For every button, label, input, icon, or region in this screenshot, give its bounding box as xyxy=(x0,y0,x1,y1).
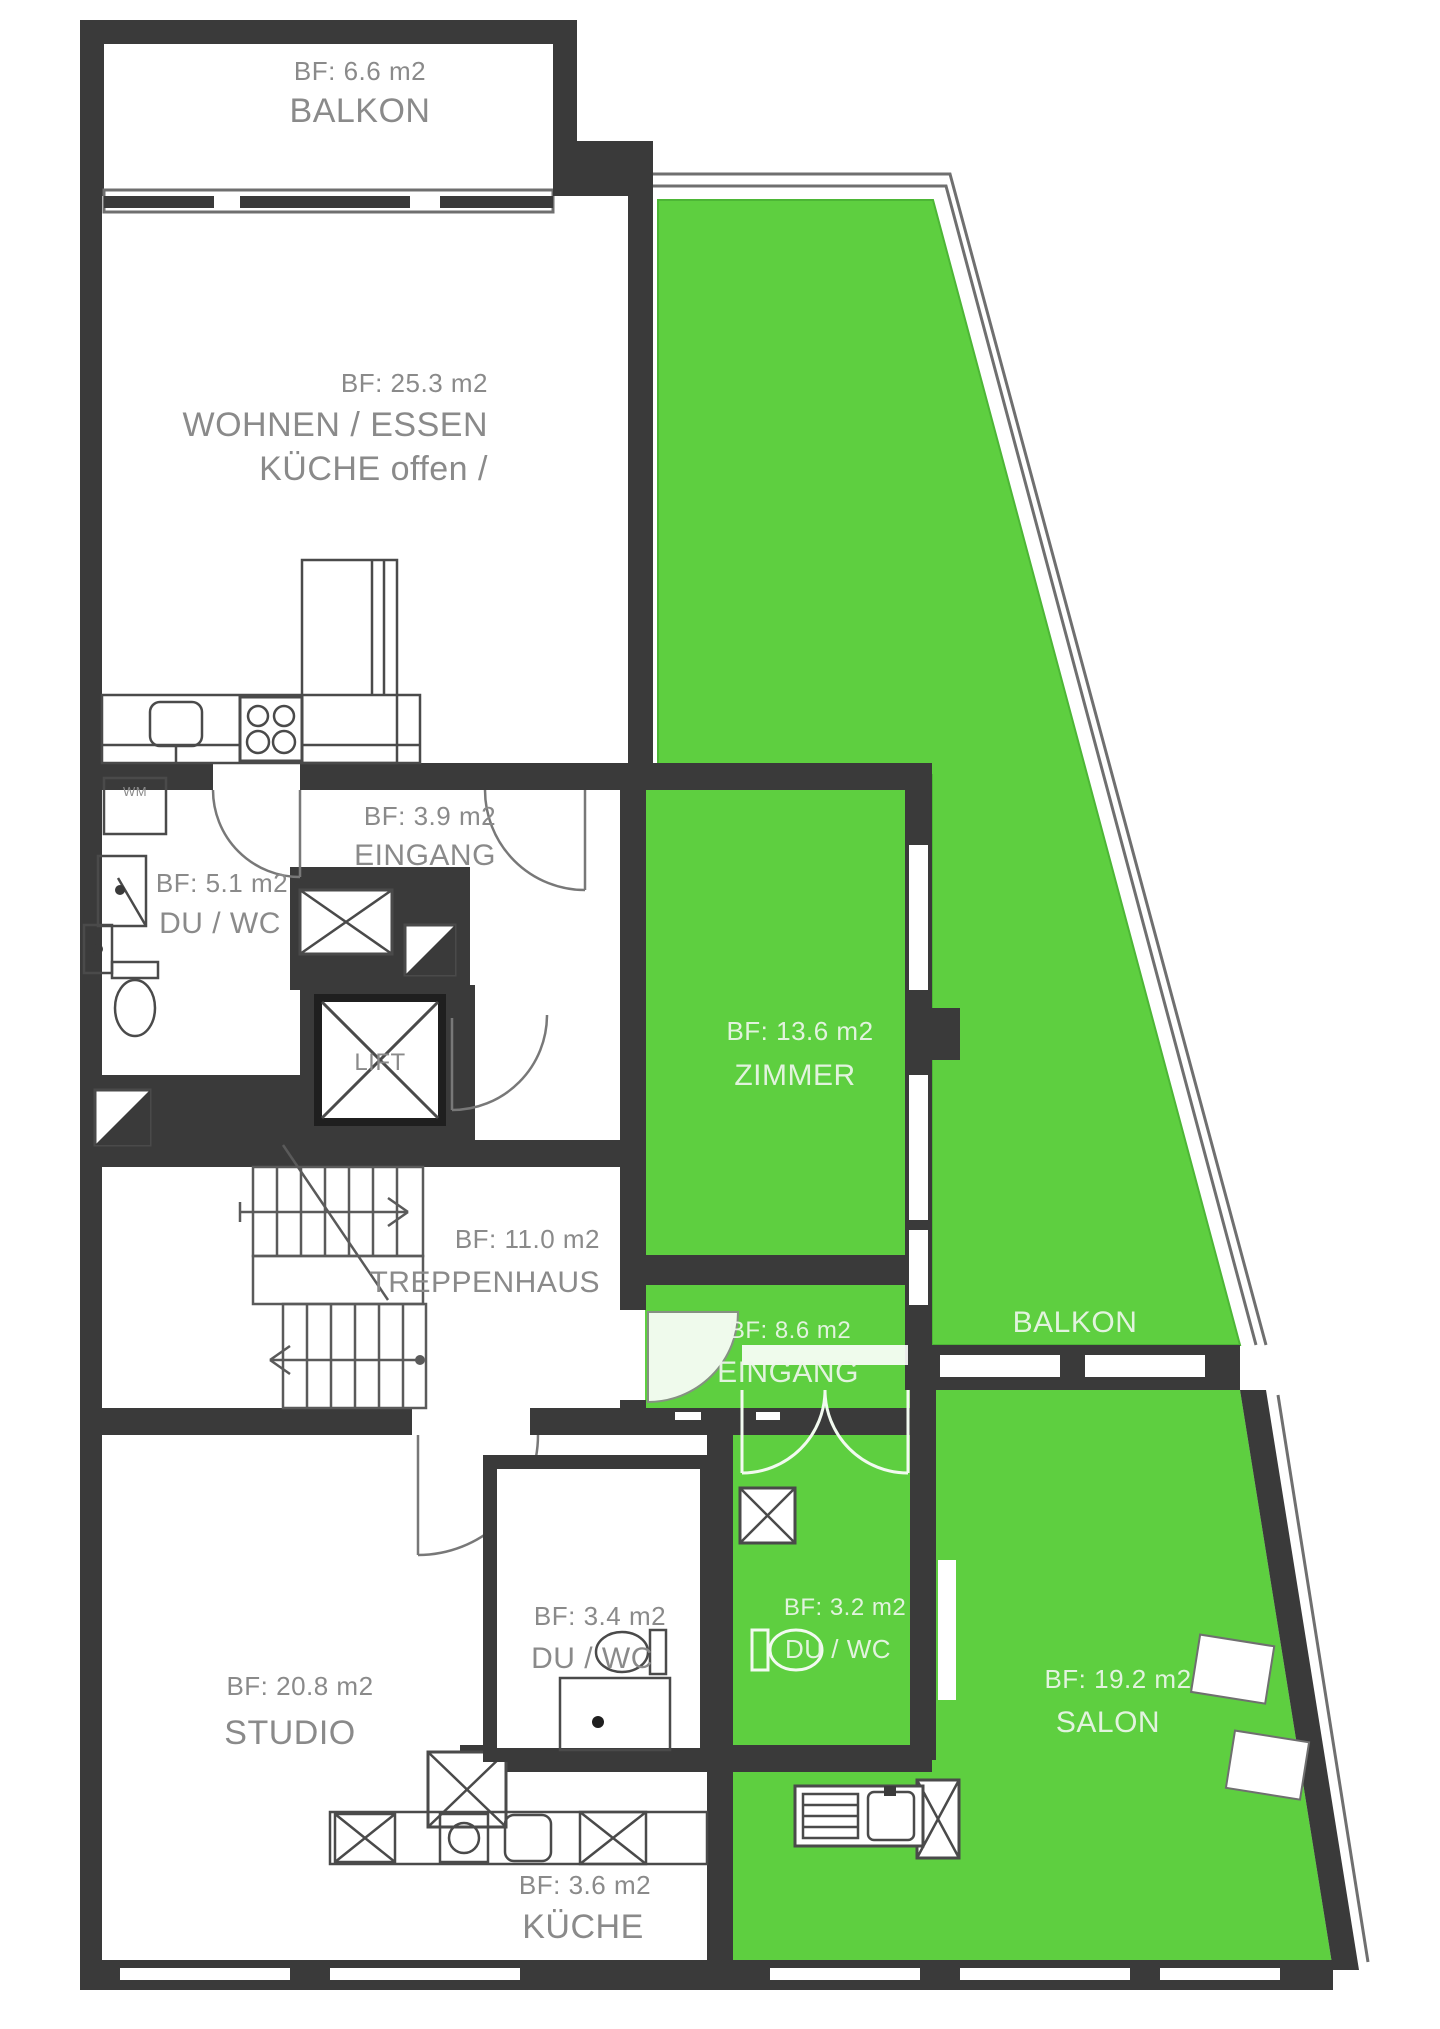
zimmer-top-wall xyxy=(653,763,932,790)
du-wc-small-area: BF: 3.4 m2 xyxy=(534,1601,666,1631)
treppenhaus-area: BF: 11.0 m2 xyxy=(455,1224,600,1254)
core-right-wall xyxy=(910,1390,936,1760)
stove-icon xyxy=(240,697,302,761)
counter-sink-icon xyxy=(505,1815,551,1861)
eingang-green-area: BF: 8.6 m2 xyxy=(729,1317,851,1344)
kitchen-right-wall xyxy=(707,1760,733,1960)
salon-area: BF: 19.2 m2 xyxy=(1044,1664,1191,1694)
eingang-top-name: EINGANG xyxy=(354,839,496,872)
zimmer-name: ZIMMER xyxy=(734,1059,855,1092)
wohnen-name2: KÜCHE offen / xyxy=(259,450,488,488)
crossed-shaft-icon xyxy=(300,890,392,954)
balcony-wall-tab xyxy=(932,1008,960,1060)
zimmer-balcony-door xyxy=(909,1230,928,1305)
living-green-divider-wall xyxy=(628,141,653,775)
counter-crossed-box-left-icon xyxy=(335,1814,395,1862)
du-wc-small-name: DU / WC xyxy=(531,1642,653,1675)
salon-sink-unit-icon xyxy=(795,1786,923,1846)
apartment-entry-door-arc xyxy=(485,790,585,890)
studio-name: STUDIO xyxy=(224,1714,355,1752)
core-shaft-right-icon xyxy=(740,1488,795,1543)
wall-triangle-shaft-icon xyxy=(95,1090,150,1145)
balkon-top-name: BALKON xyxy=(290,92,431,130)
floor-plan-page: LIFT xyxy=(0,0,1440,2029)
kueche-area: BF: 3.6 m2 xyxy=(519,1870,651,1900)
wm-label: WM xyxy=(123,784,147,799)
kitchen-sink-icon xyxy=(150,702,202,746)
balcony-left-wall xyxy=(80,20,104,196)
du-wc-top-area: BF: 5.1 m2 xyxy=(156,868,288,898)
du-wc-green-name: DU / WC xyxy=(785,1634,891,1664)
toilet-icon xyxy=(112,962,158,1036)
studio-area: BF: 20.8 m2 xyxy=(226,1671,373,1701)
bathroom-door-arc xyxy=(213,790,300,877)
floor-plan-drawing: LIFT xyxy=(0,0,1440,2029)
zimmer-hall-divider xyxy=(627,1255,910,1285)
stairhall-green-wall xyxy=(620,790,646,1310)
triangle-shaft-icon xyxy=(405,925,455,975)
salon-name: SALON xyxy=(1056,1706,1160,1739)
balcony-top-wall xyxy=(80,20,577,44)
balkon-top-area: BF: 6.6 m2 xyxy=(294,56,426,86)
shower-icon xyxy=(98,856,146,926)
zimmer-window-1 xyxy=(909,845,928,990)
zimmer-window-2 xyxy=(909,1075,928,1220)
kitchen-counter-top-apartment xyxy=(102,560,420,763)
lift-shaft-icon: LIFT xyxy=(318,998,442,1122)
stairhall-top-wall xyxy=(80,1140,646,1167)
wohnen-name: WOHNEN / ESSEN xyxy=(183,406,488,444)
treppenhaus-name: TREPPENHAUS xyxy=(369,1266,600,1299)
eingang-top-area: BF: 3.9 m2 xyxy=(364,801,496,831)
tall-cabinet-icon xyxy=(302,560,397,763)
counter-crossed-box-right-icon xyxy=(580,1812,646,1864)
kitchen-counter-bottom xyxy=(330,1812,707,1864)
open-door-leaf xyxy=(938,1560,956,1700)
balkon-green-name: BALKON xyxy=(1013,1306,1138,1339)
zimmer-area: BF: 13.6 m2 xyxy=(726,1016,873,1046)
kueche-name: KÜCHE xyxy=(522,1908,644,1946)
wohnen-area: BF: 25.3 m2 xyxy=(341,368,488,398)
eingang-green-name: EINGANG xyxy=(717,1356,859,1389)
lift-label: LIFT xyxy=(354,1049,405,1076)
du-wc-green-area: BF: 3.2 m2 xyxy=(784,1594,906,1621)
du-wc-top-name: DU / WC xyxy=(159,907,281,940)
